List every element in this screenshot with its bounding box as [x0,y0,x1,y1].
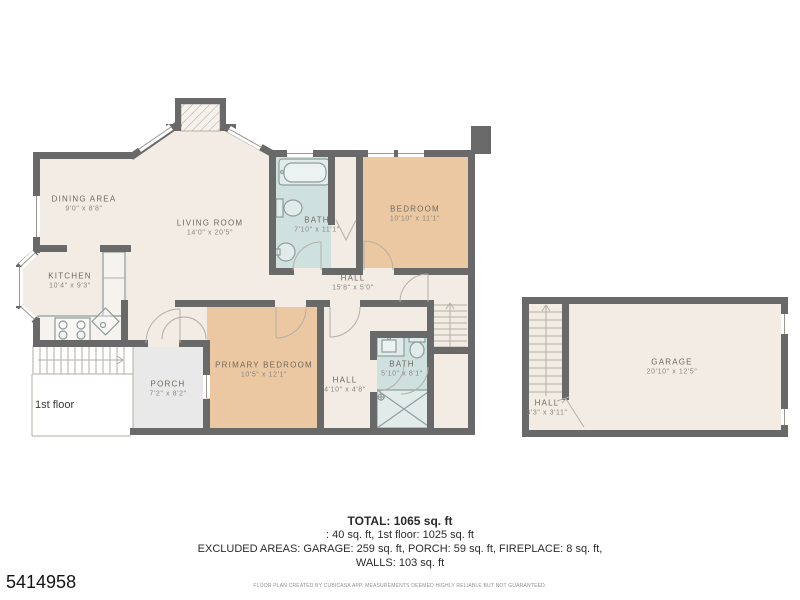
stove-icon [55,318,90,341]
bedroom-floor [360,155,470,273]
floor-plan-drawing [0,0,800,600]
area-summary: TOTAL: 1065 sq. ft : 40 sq. ft, 1st floo… [0,514,800,593]
vanity-sink-icon [377,336,404,356]
total-area-text: TOTAL: 1065 sq. ft [0,514,800,528]
porch-floor [133,344,206,430]
toilet-icon [276,199,302,217]
floor-label: 1st floor [35,399,74,411]
shower-icon [377,390,431,428]
excluded-areas-text: EXCLUDED AREAS: GARAGE: 259 sq. ft, PORC… [0,542,800,556]
floor-plan-page: DINING AREA 9'0" x 8'8" LIVING ROOM 14'0… [0,0,800,600]
deck-steps [32,346,133,436]
main-unit-floor [19,100,472,432]
listing-photo-id: 5414958 [6,572,76,593]
floor-area-text: : 40 sq. ft, 1st floor: 1025 sq. ft [0,528,800,542]
bathtub-icon [279,159,329,185]
fireplace-icon [181,104,220,131]
primary-bedroom-floor [207,305,320,428]
disclaimer-text: FLOOR PLAN CREATED BY CUBICASA APP. MEAS… [0,579,800,593]
walls-area-text: WALLS: 103 sq. ft [0,556,800,570]
toilet-icon [409,336,425,358]
